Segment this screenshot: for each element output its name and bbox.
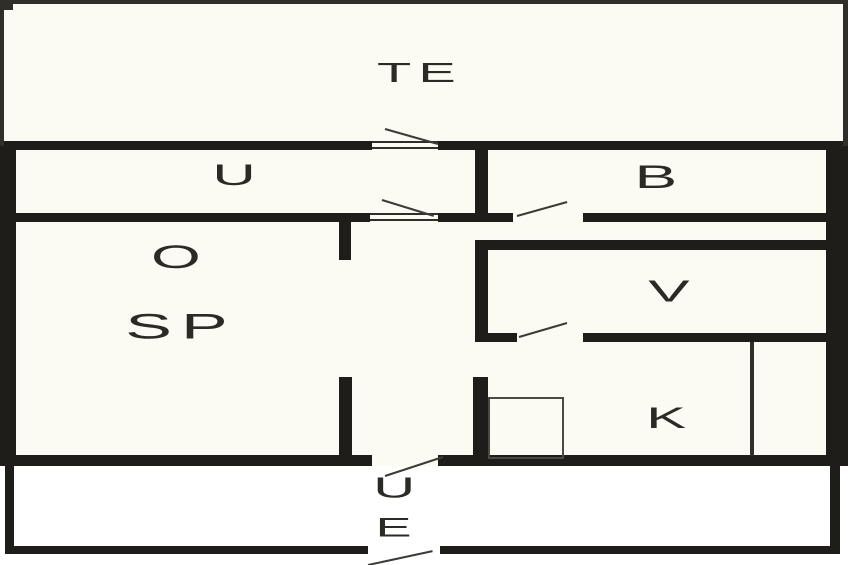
wall-segment bbox=[440, 546, 840, 554]
wall-segment bbox=[339, 217, 351, 260]
thin-line-segment bbox=[750, 342, 754, 456]
thin-line-segment bbox=[372, 147, 438, 149]
wall-segment bbox=[583, 333, 848, 342]
room-label-k: K bbox=[646, 404, 694, 434]
wall-segment bbox=[0, 143, 16, 466]
thin-line-segment bbox=[0, 0, 4, 146]
room-label-sp: SP bbox=[125, 310, 237, 345]
wall-segment bbox=[339, 377, 352, 457]
wall-segment bbox=[475, 240, 848, 250]
wall-segment bbox=[830, 466, 840, 554]
wall-segment bbox=[475, 143, 488, 222]
entry-label-u: U bbox=[373, 475, 422, 504]
thin-line-segment bbox=[370, 219, 438, 221]
thin-line-segment bbox=[843, 0, 848, 146]
wall-segment bbox=[0, 455, 372, 466]
wall-segment bbox=[0, 213, 370, 222]
room-label-v: V bbox=[648, 276, 697, 307]
thin-line-segment bbox=[0, 0, 13, 10]
wall-segment bbox=[5, 546, 368, 554]
wall-segment bbox=[5, 466, 14, 554]
wall-segment bbox=[473, 377, 488, 457]
wall-segment bbox=[438, 141, 848, 150]
door-swing-line bbox=[368, 550, 433, 565]
room-label-o: O bbox=[151, 241, 209, 273]
wall-segment bbox=[475, 333, 517, 342]
entry-label-e: E bbox=[375, 515, 418, 542]
wall-segment bbox=[826, 141, 848, 466]
wall-segment bbox=[0, 141, 372, 150]
room-label-te: TE bbox=[377, 59, 463, 87]
thin-line-segment bbox=[0, 0, 848, 4]
room-label-b: B bbox=[634, 161, 685, 193]
floorplan: TEUBOSPVKUE bbox=[0, 0, 848, 565]
kitchen-fixture-outline bbox=[488, 397, 564, 459]
wall-segment bbox=[475, 240, 488, 341]
room-label-u-hall: U bbox=[212, 161, 263, 191]
wall-segment bbox=[583, 213, 848, 222]
